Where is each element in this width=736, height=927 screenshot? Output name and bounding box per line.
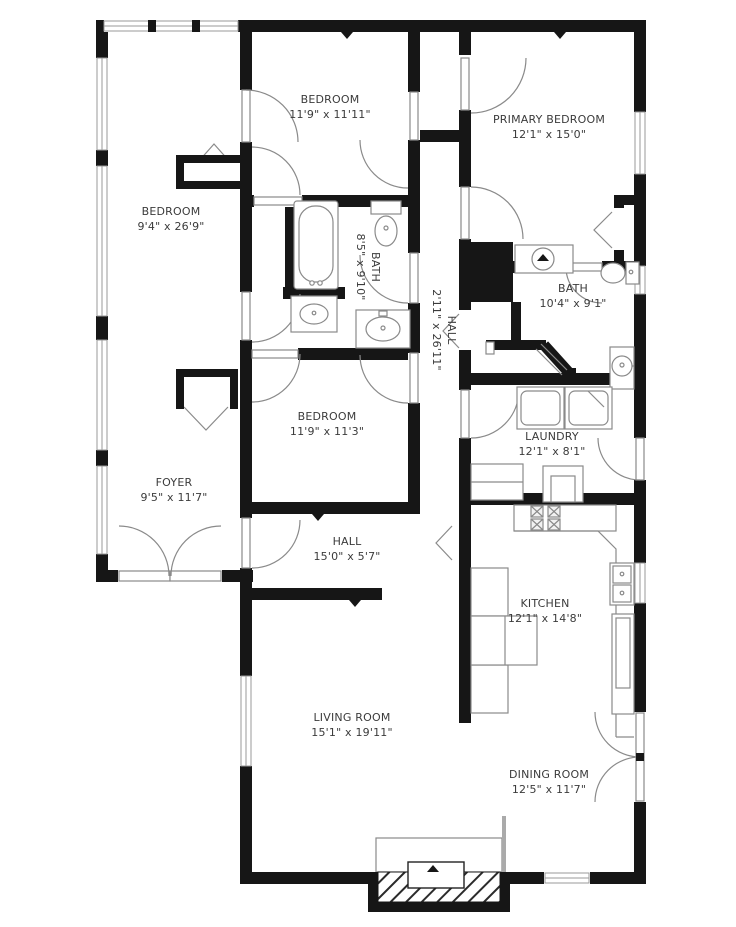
closet-door-marker-bottom (184, 407, 228, 430)
room-label-bath-center: BATH 8'5" x 9'10" (353, 233, 383, 300)
washer (517, 387, 564, 429)
laundry-counter (471, 464, 523, 500)
window-primary-bedroom (635, 112, 645, 174)
room-dims: 9'5" x 11'7" (140, 490, 207, 505)
room-name: PRIMARY BEDROOM (493, 112, 605, 127)
floor-plan-drawing (0, 0, 736, 927)
dryer (565, 387, 612, 429)
room-name: KITCHEN (508, 596, 582, 611)
room-dims: 12'1" x 8'1" (518, 444, 585, 459)
firebox (408, 862, 464, 888)
sink-hall-vanity (291, 296, 337, 332)
room-name: BEDROOM (290, 409, 364, 424)
sink-center-bath (356, 310, 410, 348)
room-dims: 11'9" x 11'3" (290, 424, 364, 439)
water-heater (543, 466, 583, 502)
floor-plan: BEDROOM 9'4" x 26'9" BEDROOM 11'9" x 11'… (0, 0, 736, 927)
kitchen-sink (610, 563, 634, 605)
room-name: BATH (539, 281, 606, 296)
room-dims: 15'1" x 19'11" (311, 725, 392, 740)
toilet-right-bath (601, 262, 639, 284)
room-name: BEDROOM (137, 204, 204, 219)
room-label-living-room: LIVING ROOM 15'1" x 19'11" (311, 710, 392, 740)
room-dims: 2'11" x 26'11" (429, 289, 444, 370)
bifold-door-primary-closet (594, 212, 612, 248)
room-label-primary-bedroom: PRIMARY BEDROOM 12'1" x 15'0" (493, 112, 605, 142)
room-label-bedroom-top: BEDROOM 11'9" x 11'11" (289, 92, 370, 122)
room-dims: 9'4" x 26'9" (137, 219, 204, 234)
kitchen-pantry (612, 614, 634, 714)
room-dims: 15'0" x 5'7" (313, 549, 380, 564)
room-dims: 10'4" x 9'1" (539, 296, 606, 311)
door-mullion-post (636, 753, 644, 761)
window-living-room (241, 676, 251, 766)
room-name: HALL (444, 289, 459, 370)
room-name: BEDROOM (289, 92, 370, 107)
room-name: DINING ROOM (509, 767, 589, 782)
bathtub (294, 201, 338, 289)
closet-upper (176, 155, 240, 189)
bath-accessory (486, 342, 494, 354)
kitchen-counter-left (471, 568, 537, 713)
fireplace (368, 816, 510, 912)
room-name: BATH (368, 233, 383, 300)
room-dims: 8'5" x 9'10" (353, 233, 368, 300)
room-label-bath-right: BATH 10'4" x 9'1" (539, 281, 606, 311)
room-name: LIVING ROOM (311, 710, 392, 725)
room-label-bedroom-left: BEDROOM 9'4" x 26'9" (137, 204, 204, 234)
window-left-wall (97, 58, 107, 554)
room-dims: 12'1" x 15'0" (493, 127, 605, 142)
room-label-hall-vertical: HALL 2'11" x 26'11" (429, 289, 459, 370)
closets (176, 155, 240, 409)
room-name: LAUNDRY (518, 429, 585, 444)
window-top-band (104, 20, 238, 32)
room-dims: 11'9" x 11'11" (289, 107, 370, 122)
room-label-laundry: LAUNDRY 12'1" x 8'1" (518, 429, 585, 459)
room-label-kitchen: KITCHEN 12'1" x 14'8" (508, 596, 582, 626)
window-kitchen (635, 563, 645, 603)
room-dims: 12'5" x 11'7" (509, 782, 589, 797)
cased-opening-chevron-hall (436, 526, 452, 560)
room-label-bedroom-middle: BEDROOM 11'9" x 11'3" (290, 409, 364, 439)
fireplace-screen-line (502, 816, 506, 872)
room-label-hall-horizontal: HALL 15'0" x 5'7" (313, 534, 380, 564)
room-dims: 12'1" x 14'8" (508, 611, 582, 626)
room-name: HALL (313, 534, 380, 549)
room-label-foyer: FOYER 9'5" x 11'7" (140, 475, 207, 505)
room-name: FOYER (140, 475, 207, 490)
closet-lower (176, 369, 238, 409)
window-dining-room (545, 873, 589, 883)
sink-right-bath-lower (610, 347, 634, 389)
room-label-dining-room: DINING ROOM 12'5" x 11'7" (509, 767, 589, 797)
